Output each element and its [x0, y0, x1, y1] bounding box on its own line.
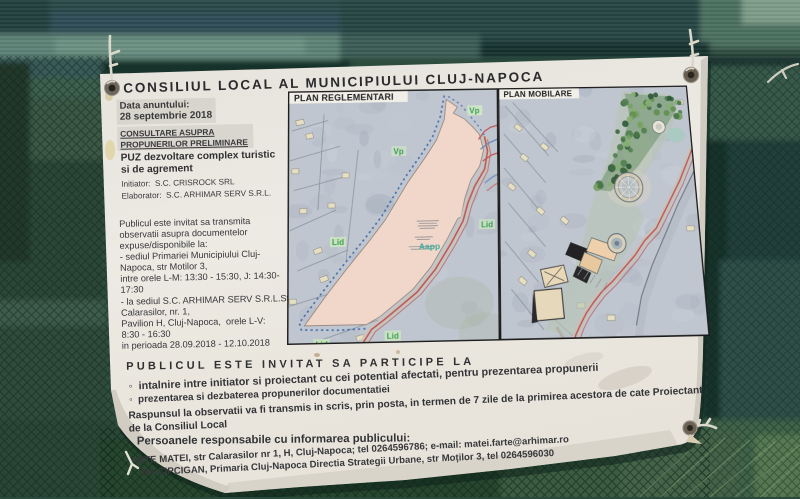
svg-text:Lid: Lid: [387, 331, 399, 340]
svg-text:PLAN MOBILARE: PLAN MOBILARE: [503, 89, 572, 99]
svg-text:Lid: Lid: [481, 220, 493, 229]
svg-text:Vp: Vp: [469, 106, 479, 115]
svg-text:Lid: Lid: [332, 238, 344, 247]
svg-text:Vp: Vp: [393, 147, 403, 156]
svg-text:Aapp: Aapp: [419, 241, 440, 251]
svg-text:PLAN REGLEMENTARI: PLAN REGLEMENTARI: [294, 92, 394, 103]
